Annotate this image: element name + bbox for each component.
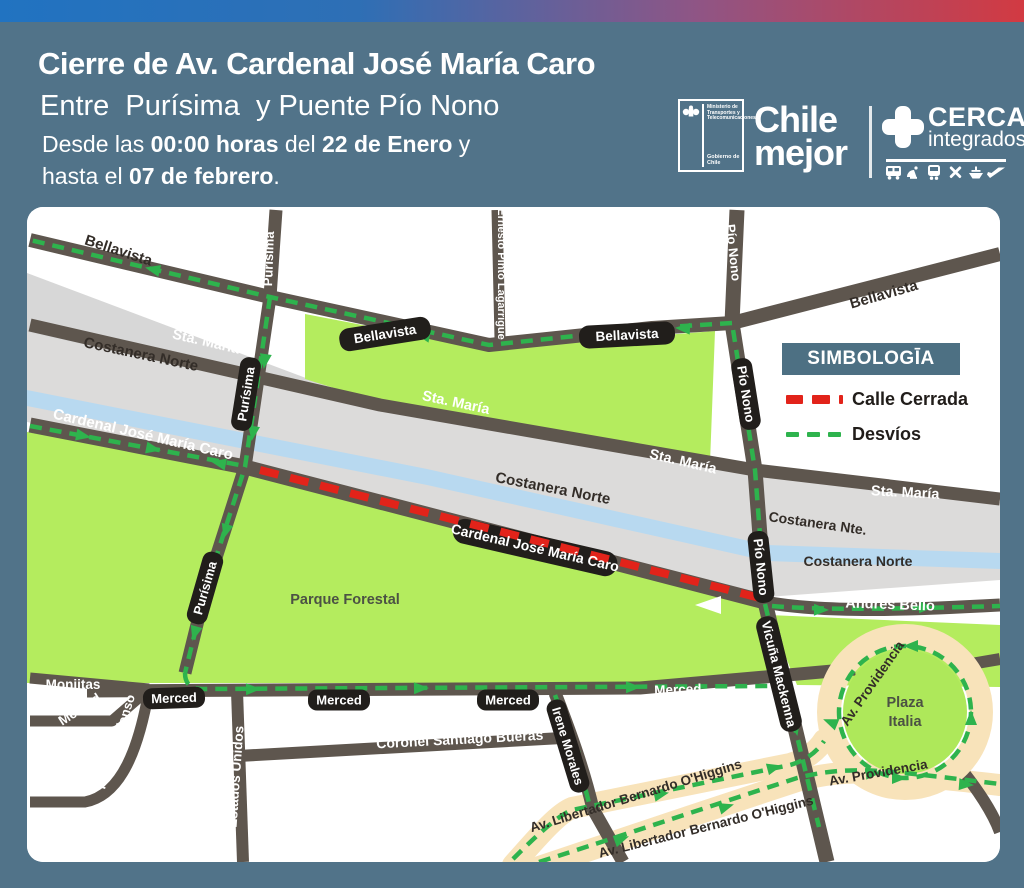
ministry-footer: Gobierno de Chile bbox=[707, 154, 743, 166]
street-label-costanera-3: Costanera Norte bbox=[804, 553, 913, 569]
legend-row-detour: Desvíos bbox=[782, 424, 960, 445]
cerca-underline bbox=[886, 159, 1006, 162]
street-label-andres-bello: Andrés Bello bbox=[845, 595, 935, 614]
date-line-2: hasta el 07 de febrero. bbox=[42, 163, 280, 190]
street-label-merced-box1: Merced bbox=[143, 686, 206, 709]
ministry-name: Ministerio de Transportes y Telecomunica… bbox=[707, 105, 741, 122]
svg-text:Merced: Merced bbox=[485, 693, 531, 708]
legend: SIMBOLOGĪA Calle Cerrada Desvíos bbox=[775, 336, 967, 463]
bus-icon bbox=[886, 166, 901, 180]
legend-closed-label: Calle Cerrada bbox=[852, 389, 968, 410]
satellite-icon bbox=[907, 166, 918, 178]
area-label-plaza-italia-1: Plaza bbox=[886, 695, 924, 711]
logo-separator bbox=[869, 106, 872, 178]
chile-mejor-line2: mejor bbox=[754, 136, 847, 169]
street-label-merced-east: Merced bbox=[654, 681, 702, 698]
tools-icon bbox=[949, 166, 962, 179]
legend-row-closed: Calle Cerrada bbox=[782, 389, 960, 410]
chile-coat-of-arms-icon bbox=[682, 104, 700, 124]
street-label-purisima-top: Purísima bbox=[260, 230, 277, 286]
street-label-merced-box2: Merced bbox=[308, 690, 370, 711]
legend-detour-label: Desvíos bbox=[852, 424, 921, 445]
infographic: Cierre de Av. Cardenal José María Caro E… bbox=[0, 0, 1024, 888]
plus-icon bbox=[880, 104, 926, 155]
plaza-italia-circle bbox=[843, 650, 967, 774]
svg-text:Merced: Merced bbox=[151, 690, 197, 707]
ship-icon bbox=[969, 167, 983, 179]
legend-title: SIMBOLOGĪA bbox=[782, 343, 960, 375]
top-gradient-bar bbox=[0, 0, 1024, 22]
area-label-parque-forestal: Parque Forestal bbox=[290, 592, 400, 608]
area-label-plaza-italia-2: Italia bbox=[888, 714, 922, 730]
date-line-1: Desde las 00:00 horas del 22 de Enero y bbox=[42, 131, 470, 158]
plane-icon bbox=[987, 168, 1005, 179]
detour-swatch bbox=[786, 432, 852, 437]
cerca-subtitle: integrados bbox=[928, 128, 1024, 152]
page-subtitle: Entre Purísima y Puente Pío Nono bbox=[40, 90, 499, 123]
closed-street-swatch bbox=[786, 395, 852, 404]
page-title: Cierre de Av. Cardenal José María Caro bbox=[38, 46, 595, 82]
ministry-logo-divider bbox=[702, 104, 704, 167]
transport-icons-row bbox=[886, 164, 1008, 186]
map-canvas: Cardenal José María Caro bbox=[27, 207, 1000, 862]
street-label-merced-box3: Merced bbox=[477, 690, 539, 711]
street-label-ernesto-pinto: Ernesto Pinto Lagarrigue bbox=[495, 208, 507, 339]
svg-text:Merced: Merced bbox=[316, 693, 362, 708]
detour-map: Cardenal José María Caro bbox=[27, 207, 1000, 862]
chile-mejor-logo: Chile mejor bbox=[754, 103, 847, 169]
train-icon bbox=[928, 165, 940, 180]
cerca-integrados-logo: CERCA integrados bbox=[884, 102, 1010, 182]
ministry-logo: Ministerio de Transportes y Telecomunica… bbox=[678, 99, 744, 172]
street-label-monjitas: Monjitas bbox=[46, 677, 101, 692]
